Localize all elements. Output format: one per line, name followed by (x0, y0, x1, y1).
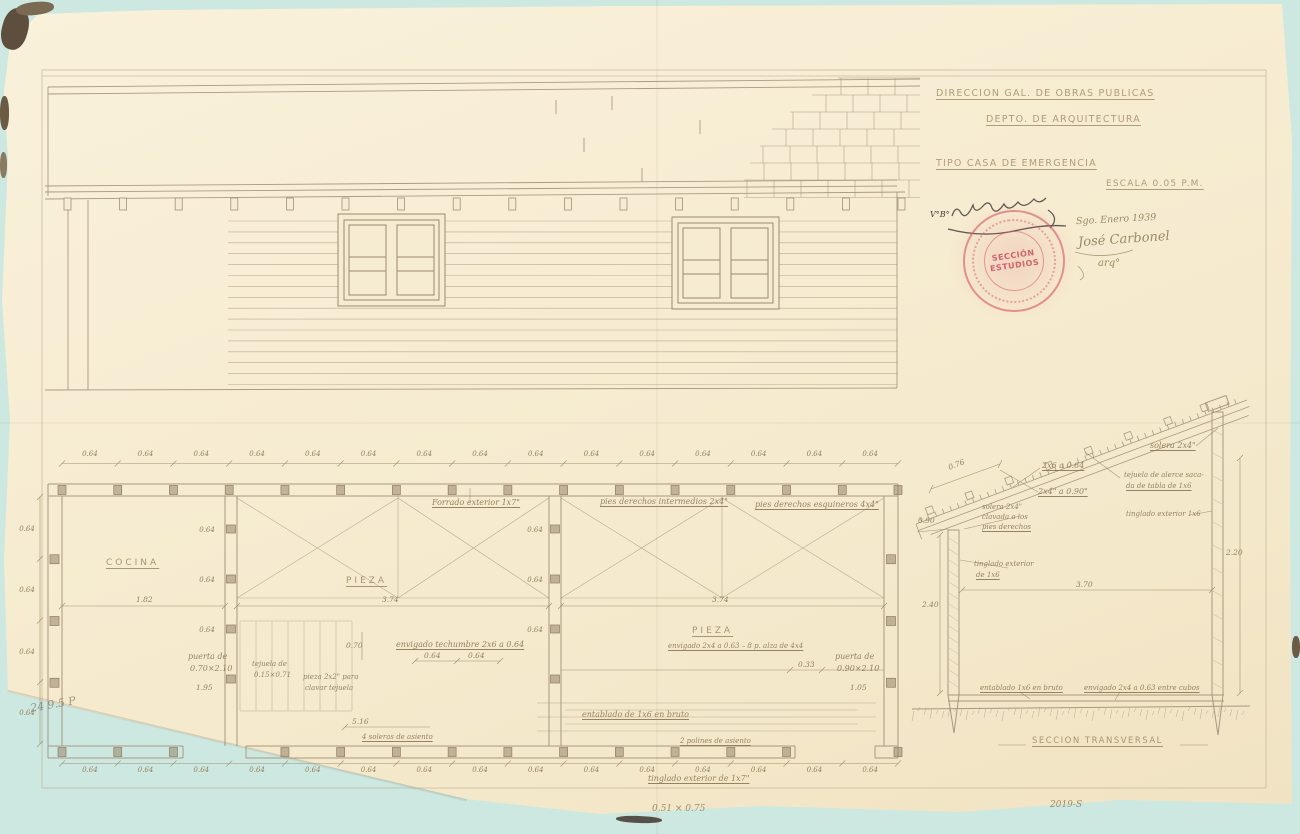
dim-label: 0.64 (285, 766, 341, 774)
sec-note-shingle-1: tejuela de alerce saca- (1124, 471, 1204, 479)
sheet-frame (42, 70, 1266, 788)
drawing-linework (0, 0, 1300, 834)
note-door-left-2: 0.70×2.10 (190, 664, 232, 673)
dim-pieza2-width: 3.74 (712, 595, 729, 604)
dim-label: 0.64 (508, 766, 564, 774)
dim-pieza1-width: 3.74 (382, 595, 399, 604)
dim-label: 0.64 (118, 450, 174, 458)
partition1-dimensions: 0.640.640.64 (194, 505, 220, 655)
note-studs-corner: pies derechos esquineros 4x4" (755, 500, 879, 509)
sec-note-battens: 2x4" a 0.90" (1038, 487, 1088, 496)
dim-label: 0.64 (842, 450, 898, 458)
note-shingle-batten-1: pieza 2x2" para (303, 673, 358, 681)
floor-plan-posts (50, 486, 902, 757)
room-label-pieza2: PIEZA (692, 626, 733, 636)
dim-label: 0.64 (564, 766, 620, 774)
room-label-pieza1: PIEZA (346, 576, 387, 586)
elevation-view (45, 79, 920, 390)
sec-note-floor-joists: envigado 2x4 a 0.63 entre cubos (1084, 684, 1200, 692)
dim-label: 0.64 (619, 766, 675, 774)
dim-516: 5.16 (352, 717, 369, 726)
dim-label: 0.64 (522, 526, 548, 534)
elevation-rafter-tails (64, 198, 905, 210)
dim-label: 0.64 (675, 450, 731, 458)
sec-note-floor-boards: entablado 1x6 en bruto (980, 684, 1063, 692)
dim-label: 0.64 (173, 450, 229, 458)
note-studs-intermediate: pies derechos intermedios 2x4" (600, 497, 728, 506)
scanned-blueprint-sheet: DIRECCION GAL. DE OBRAS PUBLICAS DEPTO. … (0, 0, 1300, 834)
dim-label: 0.64 (508, 450, 564, 458)
dim-label: 0.64 (16, 586, 38, 594)
title-department-line1: DIRECCION GAL. DE OBRAS PUBLICAS (936, 88, 1155, 99)
sec-note-shingle-2: da de tabla de 1x6 (1126, 482, 1192, 490)
note-sills-right: 2 polines de asiento (680, 737, 751, 745)
dim-label: 0.64 (62, 450, 118, 458)
dim-label: 0.64 (194, 626, 220, 634)
note-floor-boards: entablado de 1x6 en bruto (582, 710, 689, 719)
dim-label: 0.64 (842, 766, 898, 774)
sec-dim-height-left: 2.40 (922, 600, 939, 609)
plan-top-dimensions: 0.640.640.640.640.640.640.640.640.640.64… (62, 450, 898, 458)
dim-label: 0.64 (194, 526, 220, 534)
note-door-left-1: puerta de (188, 652, 227, 661)
note-door-right-1: puerta de (835, 652, 874, 661)
note-shingle-batten-2: clavar tejuela (305, 684, 353, 692)
dim-label: 0.64 (787, 450, 843, 458)
dim-label: 0.64 (16, 648, 38, 656)
dim-label: 0.64 (229, 450, 285, 458)
dim-033: 0.33 (798, 660, 815, 669)
note-siding-bottom: tinglado exterior de 1x7" (648, 774, 749, 783)
sec-dim-height-right: 2.20 (1226, 548, 1243, 557)
dim-joist-a: 0.64 (424, 651, 441, 660)
title-project: TIPO CASA DE EMERGENCIA (936, 158, 1097, 169)
dim-label: 0.64 (16, 525, 38, 533)
sec-note-rafters: 2x6 a 0.64 (1042, 461, 1084, 470)
floor-plan-dim-lines (59, 603, 887, 730)
sheet-number: 2019-S (1050, 800, 1082, 810)
sec-note-plate-3: pies derechos (982, 523, 1031, 531)
sec-note-plate-2: clavada a los (982, 513, 1028, 521)
dim-label: 0.64 (522, 576, 548, 584)
dim-label: 0.64 (675, 766, 731, 774)
drawing-content: DIRECCION GAL. DE OBRAS PUBLICAS DEPTO. … (0, 0, 1300, 834)
elevation-windows (338, 214, 779, 309)
approval-initials: V°B° (930, 210, 950, 219)
note-sills-left: 4 soleras de asiento (362, 733, 433, 741)
partition2-dimensions: 0.640.640.64 (522, 505, 548, 655)
post-hatching (949, 430, 1222, 688)
dim-door-left-offset: 1.95 (196, 683, 213, 692)
title-department-line2: DEPTO. DE ARQUITECTURA (986, 114, 1141, 125)
sec-dim-width: 3.70 (1076, 580, 1093, 589)
dim-label: 0.64 (341, 450, 397, 458)
dim-label: 0.64 (194, 576, 220, 584)
dim-label: 0.64 (522, 626, 548, 634)
dim-label: 0.64 (452, 450, 508, 458)
sec-dim-eave: 0.90 (918, 516, 935, 525)
dim-label: 0.64 (452, 766, 508, 774)
dim-door-right-offset: 1.05 (850, 683, 867, 692)
note-siding-top: Forrado exterior 1x7" (432, 498, 520, 507)
dim-cocina-width: 1.82 (136, 595, 153, 604)
section-title: SECCION TRANSVERSAL (1032, 736, 1163, 746)
sec-note-siding-left-1: tinglado exterior (974, 560, 1034, 568)
architect-title: arq° (1098, 258, 1120, 269)
dim-label: 0.64 (62, 766, 118, 774)
ground-hatching (912, 707, 1244, 721)
pencil-note-dimensions: 0.51 × 0.75 (652, 804, 705, 814)
dim-label: 0.64 (229, 766, 285, 774)
note-ceiling-joists: envigado techumbre 2x6 a 0.64 (396, 640, 524, 649)
sec-note-top-plate: solera 2x4" (1150, 441, 1196, 450)
note-shingle-2: 0.15×0.71 (254, 671, 291, 679)
dim-label: 0.64 (341, 766, 397, 774)
dim-joist-b: 0.64 (468, 651, 485, 660)
stamp-center-text: SECCIÓN ESTUDIOS (980, 227, 1048, 295)
dim-label: 0.64 (564, 450, 620, 458)
note-shingle-1: tejuela de (252, 660, 287, 668)
sec-note-plate-1: solera 2x4" (982, 503, 1022, 511)
elevation-siding-lines (228, 221, 897, 385)
sec-note-siding-left-2: de 1x6 (976, 571, 1000, 579)
dim-label: 0.64 (396, 766, 452, 774)
dim-070: 0.70 (346, 641, 363, 650)
stamp-line1: SECCIÓN (991, 248, 1035, 264)
dim-label: 0.64 (731, 450, 787, 458)
dim-label: 0.64 (396, 450, 452, 458)
sec-note-siding-right: tinglado exterior 1x6 (1126, 510, 1201, 518)
room-label-cocina: COCINA (106, 558, 159, 568)
dim-label: 0.64 (787, 766, 843, 774)
note-floor-joists: envigado 2x4 a 0.63 – 8 p. alza de 4x4 (668, 642, 803, 650)
note-door-right-2: 0.90×2.10 (837, 664, 879, 673)
dim-label: 0.64 (173, 766, 229, 774)
plan-bottom-dimensions: 0.640.640.640.640.640.640.640.640.640.64… (62, 766, 898, 774)
title-scale: ESCALA 0.05 P.M. (1106, 179, 1204, 189)
dim-label: 0.64 (285, 450, 341, 458)
dim-label: 0.64 (731, 766, 787, 774)
dim-label: 0.64 (118, 766, 174, 774)
stamp-line2: ESTUDIOS (990, 258, 1040, 275)
dim-label: 0.64 (619, 450, 675, 458)
